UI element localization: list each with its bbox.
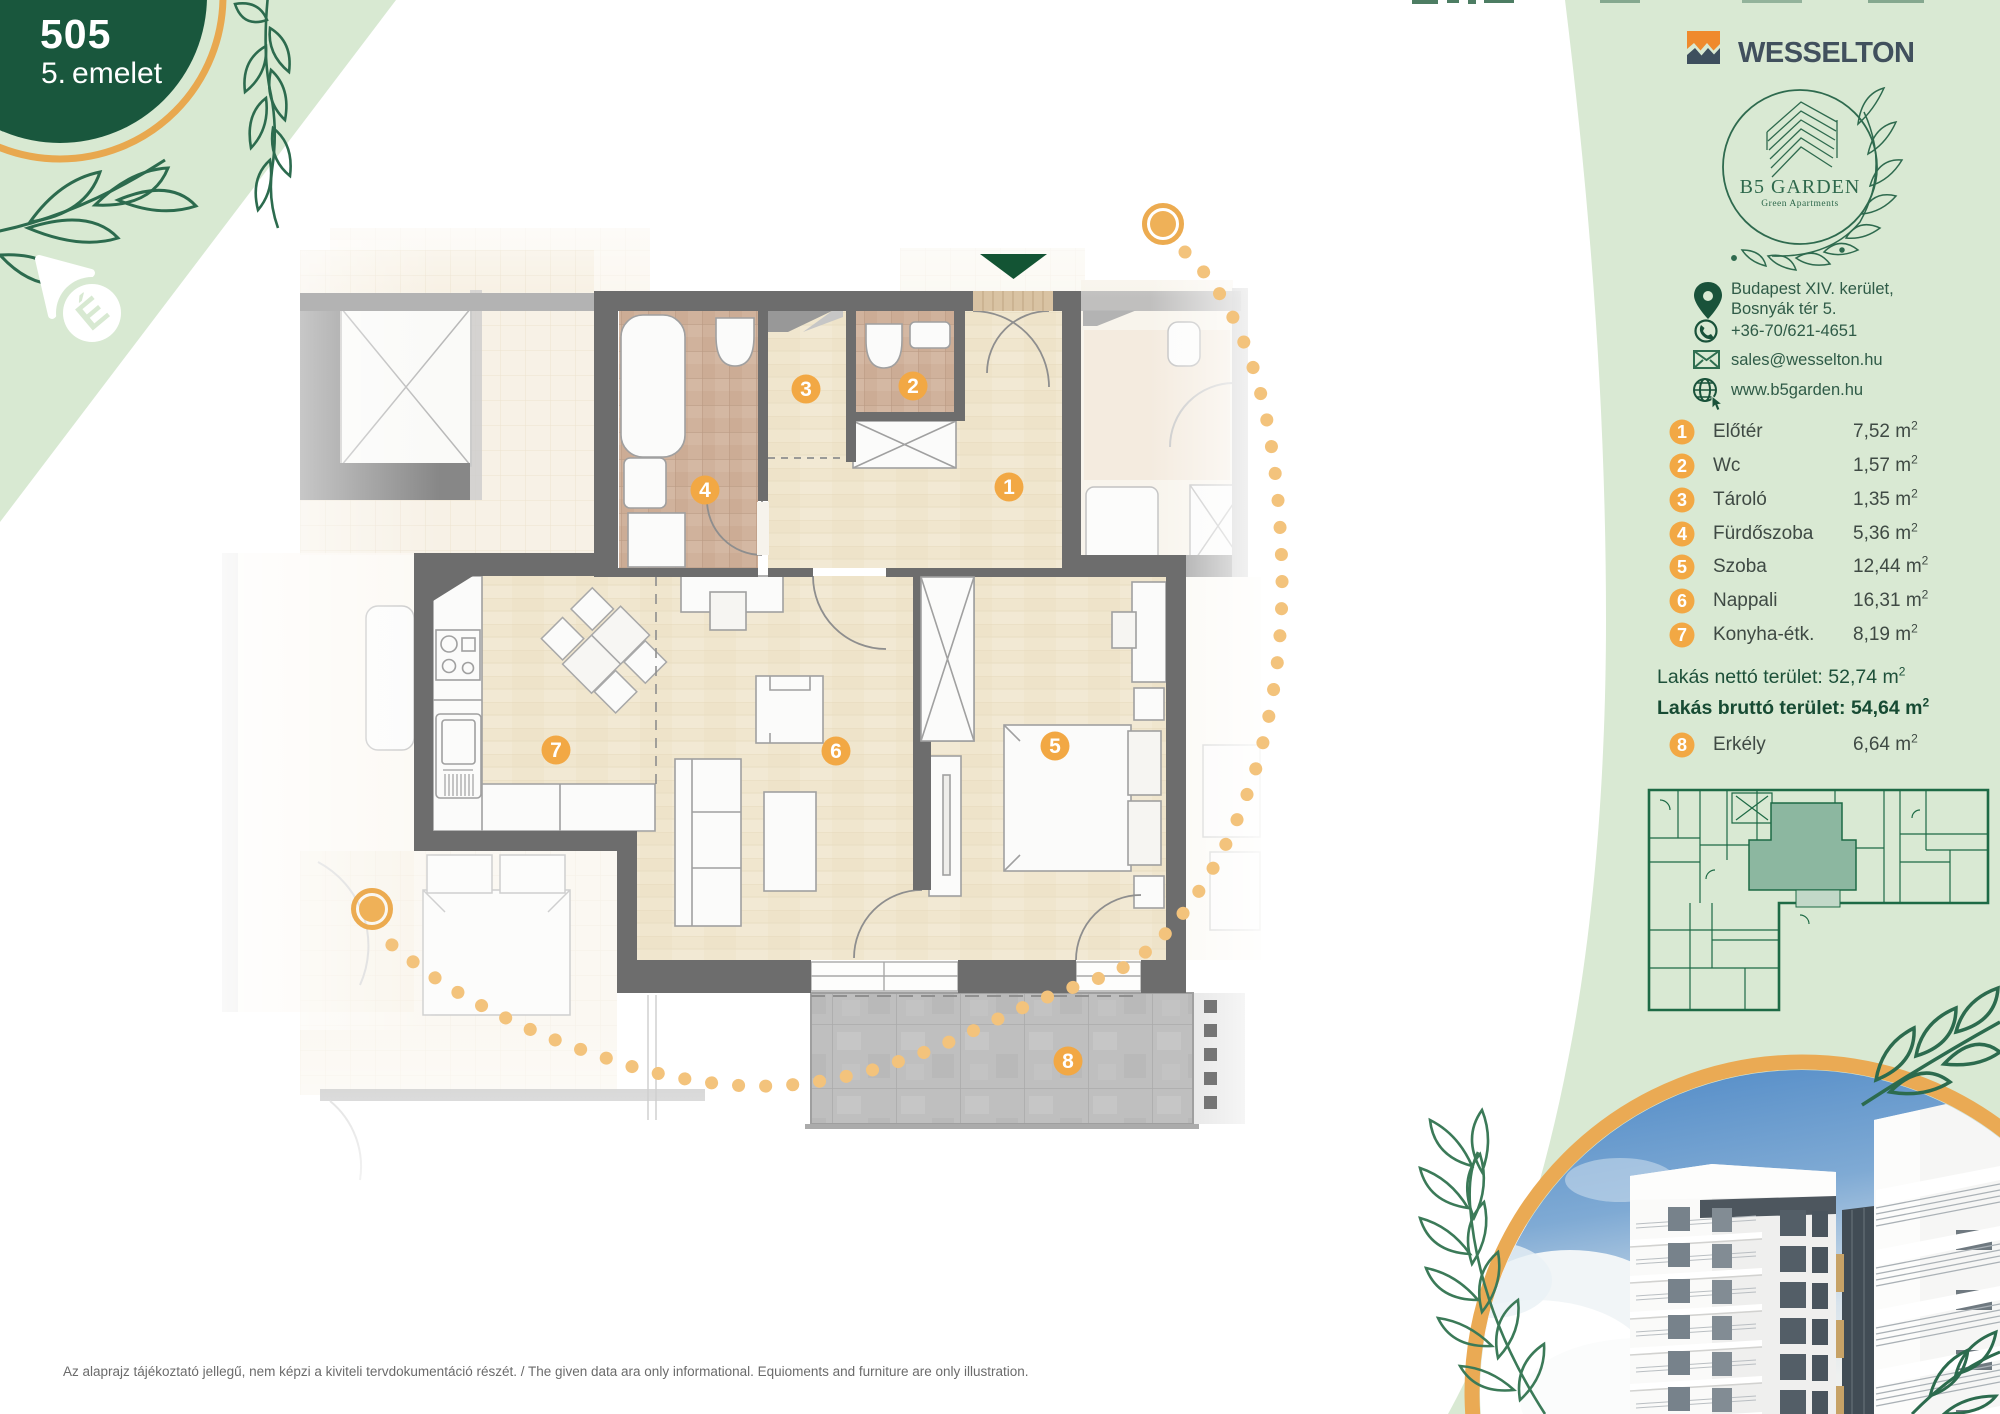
- svg-text:4: 4: [1677, 524, 1687, 544]
- svg-text:1: 1: [1003, 476, 1015, 499]
- svg-text:7: 7: [550, 739, 562, 762]
- svg-text:3: 3: [1677, 490, 1687, 510]
- svg-text:6: 6: [830, 740, 842, 763]
- svg-text:8: 8: [1062, 1050, 1074, 1073]
- svg-text:5: 5: [1049, 735, 1061, 758]
- svg-text:3: 3: [800, 378, 812, 401]
- svg-text:2: 2: [907, 375, 919, 398]
- svg-text:6: 6: [1677, 591, 1687, 611]
- svg-text:4: 4: [699, 479, 711, 502]
- svg-text:1: 1: [1677, 422, 1687, 442]
- svg-text:7: 7: [1677, 625, 1687, 645]
- svg-text:8: 8: [1677, 735, 1687, 755]
- svg-text:2: 2: [1677, 456, 1687, 476]
- svg-text:5: 5: [1677, 557, 1687, 577]
